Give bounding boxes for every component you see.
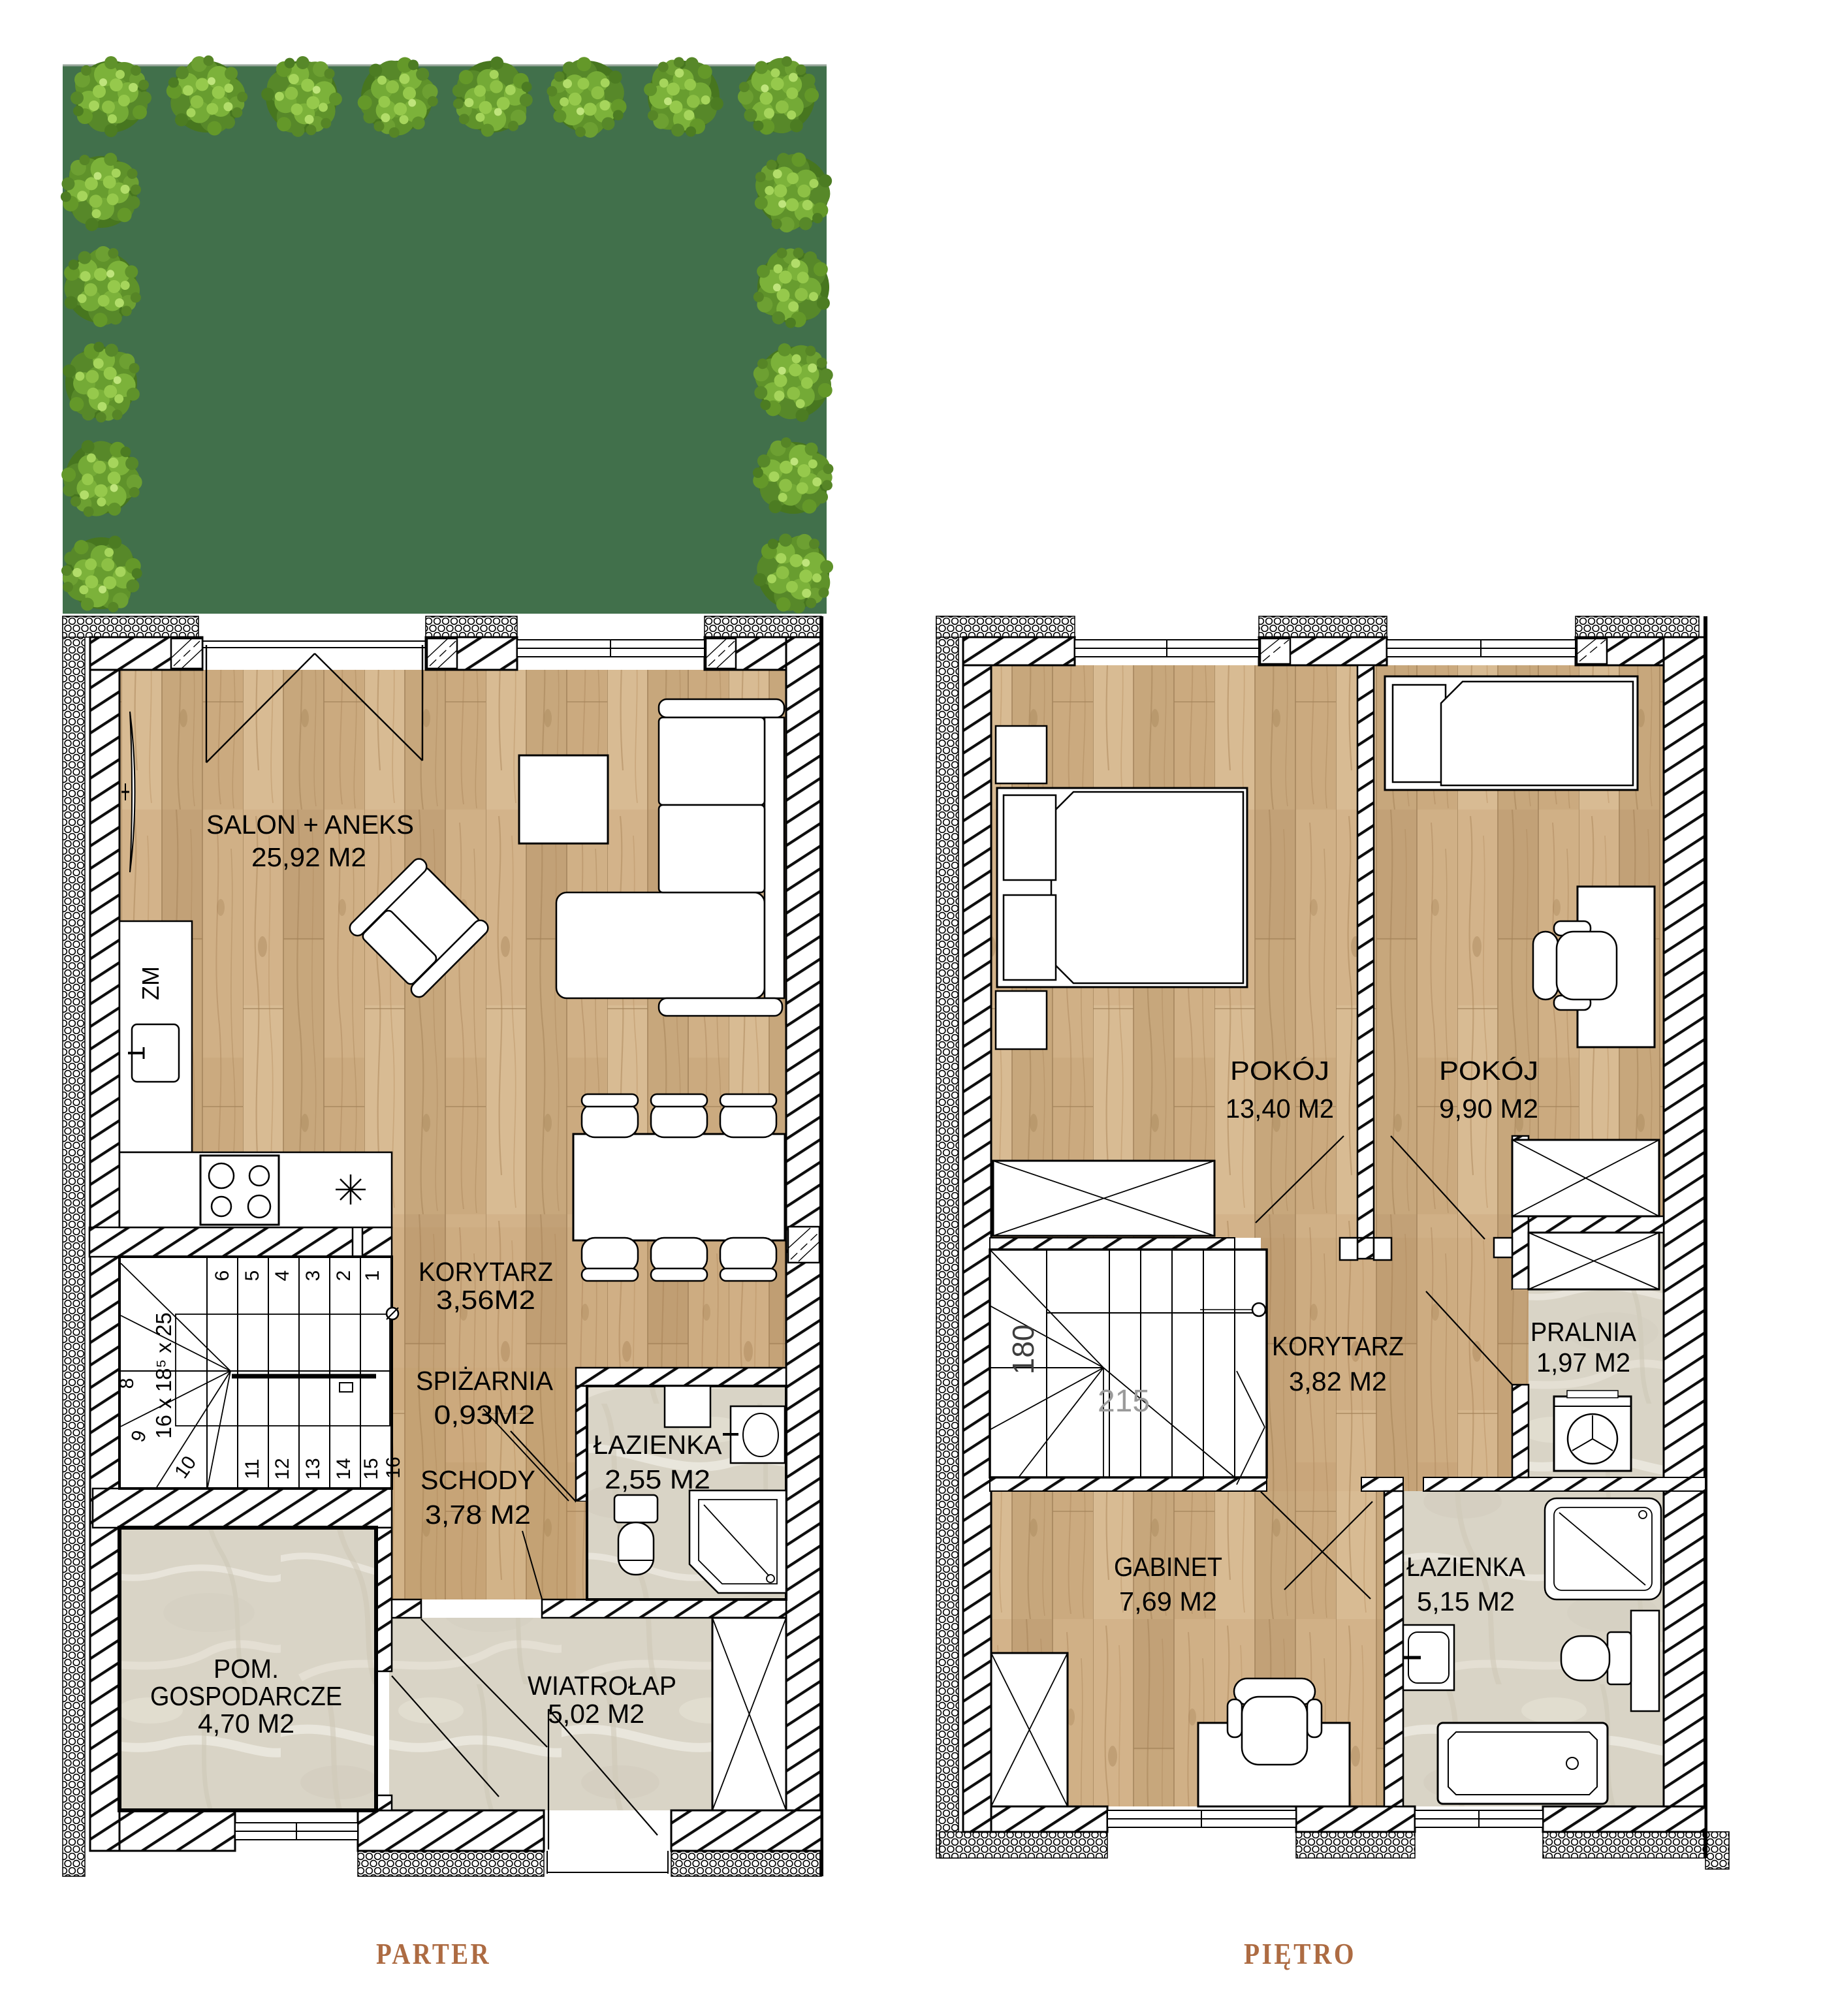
svg-text:16 x 18⁵ x 25: 16 x 18⁵ x 25 [151,1312,176,1438]
svg-text:13,40 M2: 13,40 M2 [1226,1094,1334,1124]
svg-text:2,55 M2: 2,55 M2 [605,1464,710,1494]
svg-text:15: 15 [360,1458,382,1479]
svg-text:1,97 M2: 1,97 M2 [1536,1347,1630,1378]
svg-text:3,56M2: 3,56M2 [436,1285,535,1315]
svg-text:SCHODY: SCHODY [420,1465,535,1495]
svg-text:7,69 M2: 7,69 M2 [1119,1586,1217,1616]
svg-text:8: 8 [116,1378,138,1389]
svg-text:WIATROŁAP: WIATROŁAP [528,1671,676,1701]
svg-text:1: 1 [362,1270,383,1282]
svg-text:3,82 M2: 3,82 M2 [1289,1366,1387,1396]
svg-text:GABINET: GABINET [1114,1552,1222,1582]
svg-text:25,92 M2: 25,92 M2 [251,842,366,872]
svg-text:POM.: POM. [214,1654,279,1684]
svg-text:GOSPODARCZE: GOSPODARCZE [150,1681,342,1711]
svg-text:KORYTARZ: KORYTARZ [1272,1331,1404,1361]
svg-text:ŁAZIENKA: ŁAZIENKA [1406,1552,1526,1582]
svg-text:16: 16 [383,1457,404,1478]
svg-text:KORYTARZ: KORYTARZ [419,1257,553,1287]
svg-text:13: 13 [302,1458,324,1479]
svg-text:5,15 M2: 5,15 M2 [1417,1586,1515,1616]
svg-text:12: 12 [272,1458,293,1479]
svg-text:180: 180 [1006,1325,1040,1375]
svg-text:14: 14 [333,1458,355,1479]
svg-text:4: 4 [272,1270,293,1282]
svg-text:SPIŻARNIA: SPIŻARNIA [416,1366,554,1396]
svg-text:POKÓJ: POKÓJ [1230,1056,1329,1086]
svg-text:POKÓJ: POKÓJ [1439,1056,1538,1086]
svg-text:11: 11 [242,1458,263,1479]
svg-text:5,02 M2: 5,02 M2 [548,1699,644,1729]
svg-text:5: 5 [242,1270,263,1282]
svg-text:2: 2 [333,1270,355,1282]
svg-text:ŁAZIENKA: ŁAZIENKA [594,1430,723,1460]
svg-text:215: 215 [1098,1384,1150,1419]
svg-text:9,90 M2: 9,90 M2 [1439,1094,1538,1124]
svg-text:ZM: ZM [137,966,164,1000]
svg-text:SALON + ANEKS: SALON + ANEKS [206,810,414,840]
svg-text:4,70 M2: 4,70 M2 [198,1709,294,1739]
svg-text:PIĘTRO: PIĘTRO [1244,1937,1356,1970]
svg-text:3,78 M2: 3,78 M2 [425,1500,531,1530]
svg-text:PRALNIA: PRALNIA [1530,1317,1637,1347]
svg-text:PARTER: PARTER [376,1937,491,1970]
svg-text:6: 6 [212,1270,233,1282]
svg-text:3: 3 [302,1270,324,1282]
svg-text:0,93M2: 0,93M2 [434,1400,535,1430]
